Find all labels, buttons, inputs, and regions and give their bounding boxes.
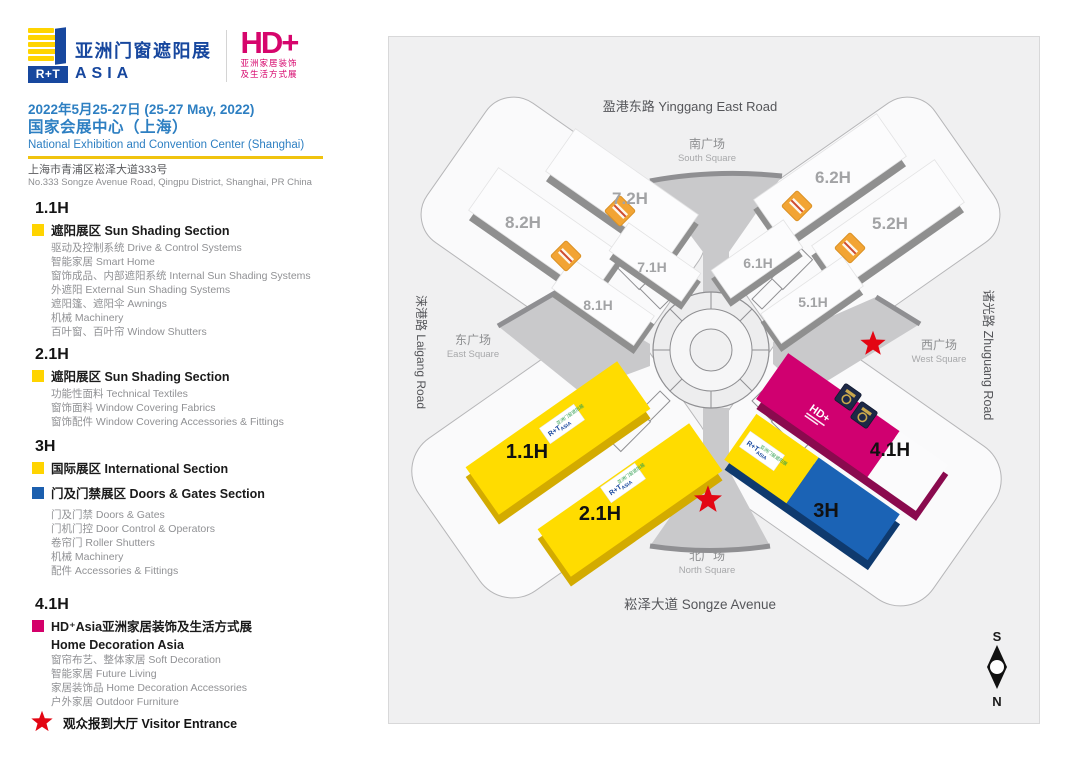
- hall-label-7-2h: 7.2H: [612, 189, 648, 208]
- hall-label-4-1h: 4.1H: [870, 440, 910, 461]
- hall-label-1-1h: 1.1H: [506, 441, 548, 463]
- hall-label-6-1h: 6.1H: [743, 255, 773, 271]
- compass-n-label: N: [992, 694, 1001, 709]
- south-square-label-cn: 南广场: [689, 136, 725, 151]
- west-square-label-en: West Square: [912, 354, 967, 365]
- road-label-yinggang: 盈港东路 Yinggang East Road: [603, 99, 777, 114]
- east-square-label-en: East Square: [447, 349, 499, 360]
- hall-label-6-2h: 6.2H: [815, 168, 851, 187]
- hall-label-3h: 3H: [813, 500, 839, 522]
- hall-label-8-1h: 8.1H: [583, 297, 613, 313]
- venue-map: R+T 亚洲门窗遮阳展 ASIA HD+ 盈港东路 Yinggang East …: [0, 0, 1080, 764]
- hall-label-7-1h: 7.1H: [637, 259, 667, 275]
- road-label-songze: 崧泽大道 Songze Avenue: [624, 597, 776, 612]
- hall-label-2-1h: 2.1H: [579, 503, 621, 525]
- compass-s-label: S: [993, 629, 1002, 644]
- south-square-label-en: South Square: [678, 153, 736, 164]
- hall-label-5-2h: 5.2H: [872, 214, 908, 233]
- east-square-label-cn: 东广场: [455, 333, 491, 347]
- north-square-label-en: North Square: [679, 565, 736, 576]
- west-square-label-cn: 西广场: [921, 338, 957, 352]
- floorplan-page: R+T 亚洲门窗遮阳展 ASIA HD+ 亚洲家居装饰 及生活方式展 2022年…: [0, 0, 1080, 764]
- hall-label-8-2h: 8.2H: [505, 213, 541, 232]
- road-label-zhuguang: 诸光路 Zhuguang Road: [981, 290, 996, 421]
- road-label-laigang: 涞港路 Laigang Road: [414, 295, 429, 409]
- venue-map-svg: R+T 亚洲门窗遮阳展 ASIA HD+ 盈港东路 Yinggang East …: [0, 0, 1080, 764]
- hall-label-5-1h: 5.1H: [798, 294, 828, 310]
- compass-hub: [990, 660, 1004, 674]
